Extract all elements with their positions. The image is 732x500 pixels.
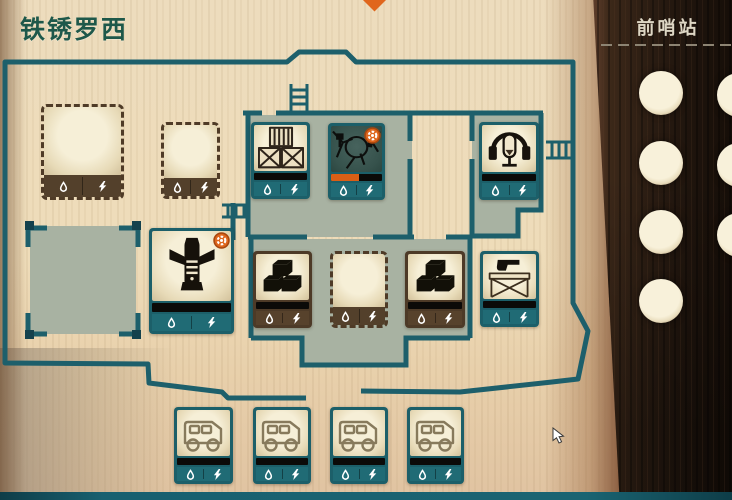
durability-bar bbox=[333, 458, 385, 465]
tile-icon-area bbox=[44, 107, 121, 175]
tile-icon-area bbox=[256, 254, 309, 300]
tile-icon-area bbox=[408, 254, 462, 300]
water-drop-icon bbox=[491, 184, 500, 197]
vehicle-icon bbox=[413, 412, 459, 454]
lightning-bolt-icon bbox=[365, 184, 374, 197]
tile-icon-area bbox=[331, 126, 382, 172]
tile-footer bbox=[482, 183, 536, 197]
tile-icon-area bbox=[333, 410, 385, 456]
water-drop-icon bbox=[186, 468, 195, 481]
tile-vehicle-4[interactable] bbox=[407, 407, 464, 484]
base-title: 铁锈罗西 bbox=[20, 10, 128, 46]
lightning-bolt-icon bbox=[444, 312, 453, 325]
tile-vehicle-3[interactable] bbox=[330, 407, 388, 484]
lightning-bolt-icon bbox=[292, 312, 301, 325]
tile-footer bbox=[333, 307, 385, 325]
tile-footer bbox=[177, 467, 230, 481]
tile-icon-area bbox=[333, 254, 385, 307]
tile-storage-slot-1[interactable] bbox=[161, 122, 220, 199]
water-drop-icon bbox=[341, 468, 350, 481]
tile-footer bbox=[44, 175, 121, 197]
durability-bar bbox=[256, 302, 309, 309]
porthole-slot[interactable] bbox=[639, 210, 683, 254]
durability-bar bbox=[408, 302, 462, 309]
corridor bbox=[302, 338, 406, 365]
lightning-bolt-icon bbox=[368, 468, 377, 481]
water-drop-icon bbox=[341, 310, 350, 323]
tile-footer bbox=[254, 182, 307, 196]
lightning-bolt-icon bbox=[200, 181, 209, 194]
water-drop-icon bbox=[418, 468, 427, 481]
tile-footer bbox=[164, 178, 217, 196]
tile-icon-area bbox=[177, 410, 230, 456]
lightning-bolt-icon bbox=[291, 468, 300, 481]
water-drop-icon bbox=[265, 312, 274, 325]
vehicle-icon bbox=[181, 412, 227, 454]
tile-icon-area bbox=[152, 231, 231, 301]
lightning-bolt-icon bbox=[368, 310, 377, 323]
durability-bar bbox=[254, 173, 307, 180]
lightning-bolt-icon bbox=[98, 180, 107, 193]
crates-icon bbox=[258, 125, 304, 171]
water-drop-icon bbox=[167, 316, 176, 329]
tile-icon-area bbox=[254, 125, 307, 171]
water-drop-icon bbox=[59, 180, 68, 193]
repair-gear-icon bbox=[213, 232, 230, 249]
tile-footer bbox=[256, 311, 309, 325]
mouse-cursor bbox=[552, 427, 566, 449]
gun-rack-icon bbox=[486, 255, 533, 299]
vehicle-icon bbox=[336, 412, 382, 454]
tile-storage-slot-2[interactable] bbox=[330, 251, 388, 328]
lightning-bolt-icon bbox=[518, 184, 527, 197]
ladder-roof-icon bbox=[291, 84, 307, 113]
porthole-slot[interactable] bbox=[639, 279, 683, 323]
durability-bar bbox=[256, 458, 308, 465]
bottom-bar bbox=[0, 492, 732, 500]
tile-footer bbox=[152, 314, 231, 331]
tile-bricks-2[interactable] bbox=[405, 251, 465, 328]
tile-workbench[interactable] bbox=[149, 228, 234, 334]
workbench-icon bbox=[163, 235, 221, 297]
tile-vehicle-1[interactable] bbox=[174, 407, 233, 484]
tile-gun-rack[interactable] bbox=[480, 251, 539, 327]
radio-icon bbox=[486, 128, 533, 170]
tile-vehicle-2[interactable] bbox=[253, 407, 311, 484]
tile-footer bbox=[331, 183, 382, 197]
lightning-bolt-icon bbox=[290, 183, 299, 196]
outpost-title: 前哨站 bbox=[604, 14, 732, 40]
selection-square[interactable] bbox=[25, 221, 141, 339]
durability-bar bbox=[177, 458, 230, 465]
tile-footer bbox=[408, 311, 462, 325]
tile-icon-area bbox=[410, 410, 461, 456]
water-drop-icon bbox=[264, 468, 273, 481]
tile-storage-slot-large[interactable] bbox=[41, 104, 124, 200]
water-drop-icon bbox=[492, 311, 501, 324]
water-drop-icon bbox=[173, 181, 182, 194]
tile-icon-area bbox=[482, 125, 536, 172]
durability-bar bbox=[482, 174, 536, 181]
lightning-bolt-icon bbox=[444, 468, 453, 481]
ladder-right-icon bbox=[546, 142, 574, 158]
game-screen: 前哨站 铁锈罗西 bbox=[0, 0, 732, 500]
durability-bar bbox=[152, 303, 231, 312]
durability-bar bbox=[410, 458, 461, 465]
water-drop-icon bbox=[339, 184, 348, 197]
bricks-icon bbox=[260, 257, 305, 297]
lightning-bolt-icon bbox=[519, 311, 528, 324]
tile-broken-machine[interactable] bbox=[328, 123, 385, 200]
tile-icon-area bbox=[256, 410, 308, 456]
tile-footer bbox=[333, 467, 385, 481]
bricks-icon bbox=[413, 257, 458, 297]
tile-footer bbox=[256, 467, 308, 481]
durability-bar bbox=[483, 301, 536, 308]
water-drop-icon bbox=[417, 312, 426, 325]
durability-bar bbox=[331, 174, 382, 181]
water-drop-icon bbox=[263, 183, 272, 196]
tile-footer bbox=[410, 467, 461, 481]
tile-icon-area bbox=[483, 254, 536, 299]
vehicle-icon bbox=[259, 412, 305, 454]
tile-crates[interactable] bbox=[251, 122, 310, 199]
repair-gear-icon bbox=[364, 127, 381, 144]
porthole-slot[interactable] bbox=[639, 71, 683, 115]
tile-footer bbox=[483, 310, 536, 324]
lightning-bolt-icon bbox=[207, 316, 216, 329]
tile-radio[interactable] bbox=[479, 122, 539, 200]
tile-icon-area bbox=[164, 125, 217, 178]
porthole-slot[interactable] bbox=[639, 141, 683, 185]
lightning-bolt-icon bbox=[213, 468, 222, 481]
tile-bricks-1[interactable] bbox=[253, 251, 312, 328]
outpost-divider bbox=[601, 44, 732, 46]
